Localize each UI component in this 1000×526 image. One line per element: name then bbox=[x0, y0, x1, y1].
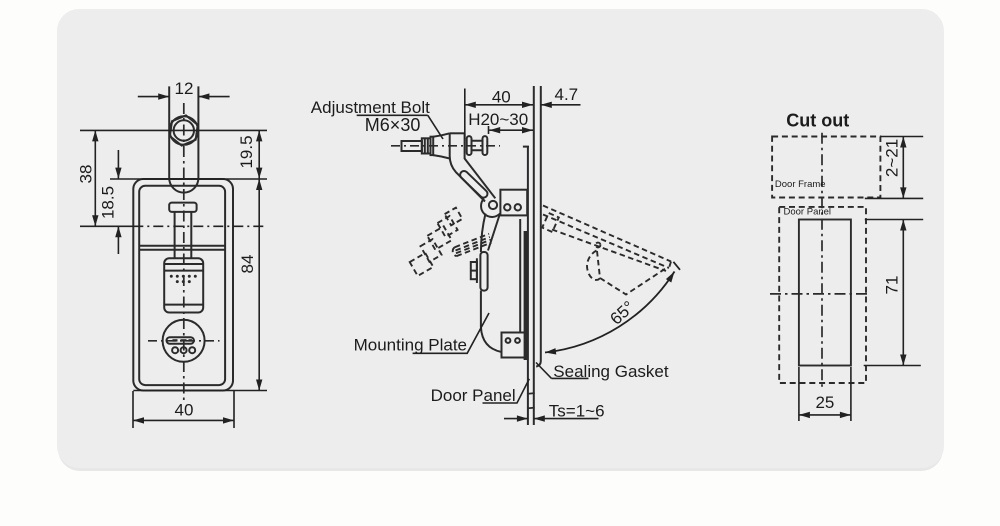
svg-text:84: 84 bbox=[238, 255, 257, 274]
svg-text:18.5: 18.5 bbox=[99, 186, 118, 219]
svg-text:Door Panel: Door Panel bbox=[784, 206, 832, 217]
svg-text:Ts=1~6: Ts=1~6 bbox=[549, 402, 605, 421]
svg-text:Mounting Plate: Mounting Plate bbox=[354, 335, 467, 354]
svg-text:Door Frame: Door Frame bbox=[775, 179, 826, 190]
svg-text:4.7: 4.7 bbox=[555, 85, 579, 104]
svg-text:Sealing Gasket: Sealing Gasket bbox=[553, 362, 669, 381]
svg-text:12: 12 bbox=[175, 79, 194, 98]
svg-text:71: 71 bbox=[883, 276, 902, 295]
svg-text:25: 25 bbox=[815, 393, 834, 412]
svg-text:Cut out: Cut out bbox=[786, 111, 849, 131]
svg-text:Door Panel: Door Panel bbox=[431, 386, 516, 405]
svg-text:M6×30: M6×30 bbox=[365, 115, 421, 135]
svg-text:40: 40 bbox=[492, 88, 511, 107]
svg-text:H20~30: H20~30 bbox=[468, 110, 528, 129]
svg-text:2~21: 2~21 bbox=[883, 139, 902, 177]
svg-text:38: 38 bbox=[77, 165, 96, 184]
svg-text:40: 40 bbox=[175, 401, 194, 420]
svg-text:19.5: 19.5 bbox=[237, 135, 256, 168]
